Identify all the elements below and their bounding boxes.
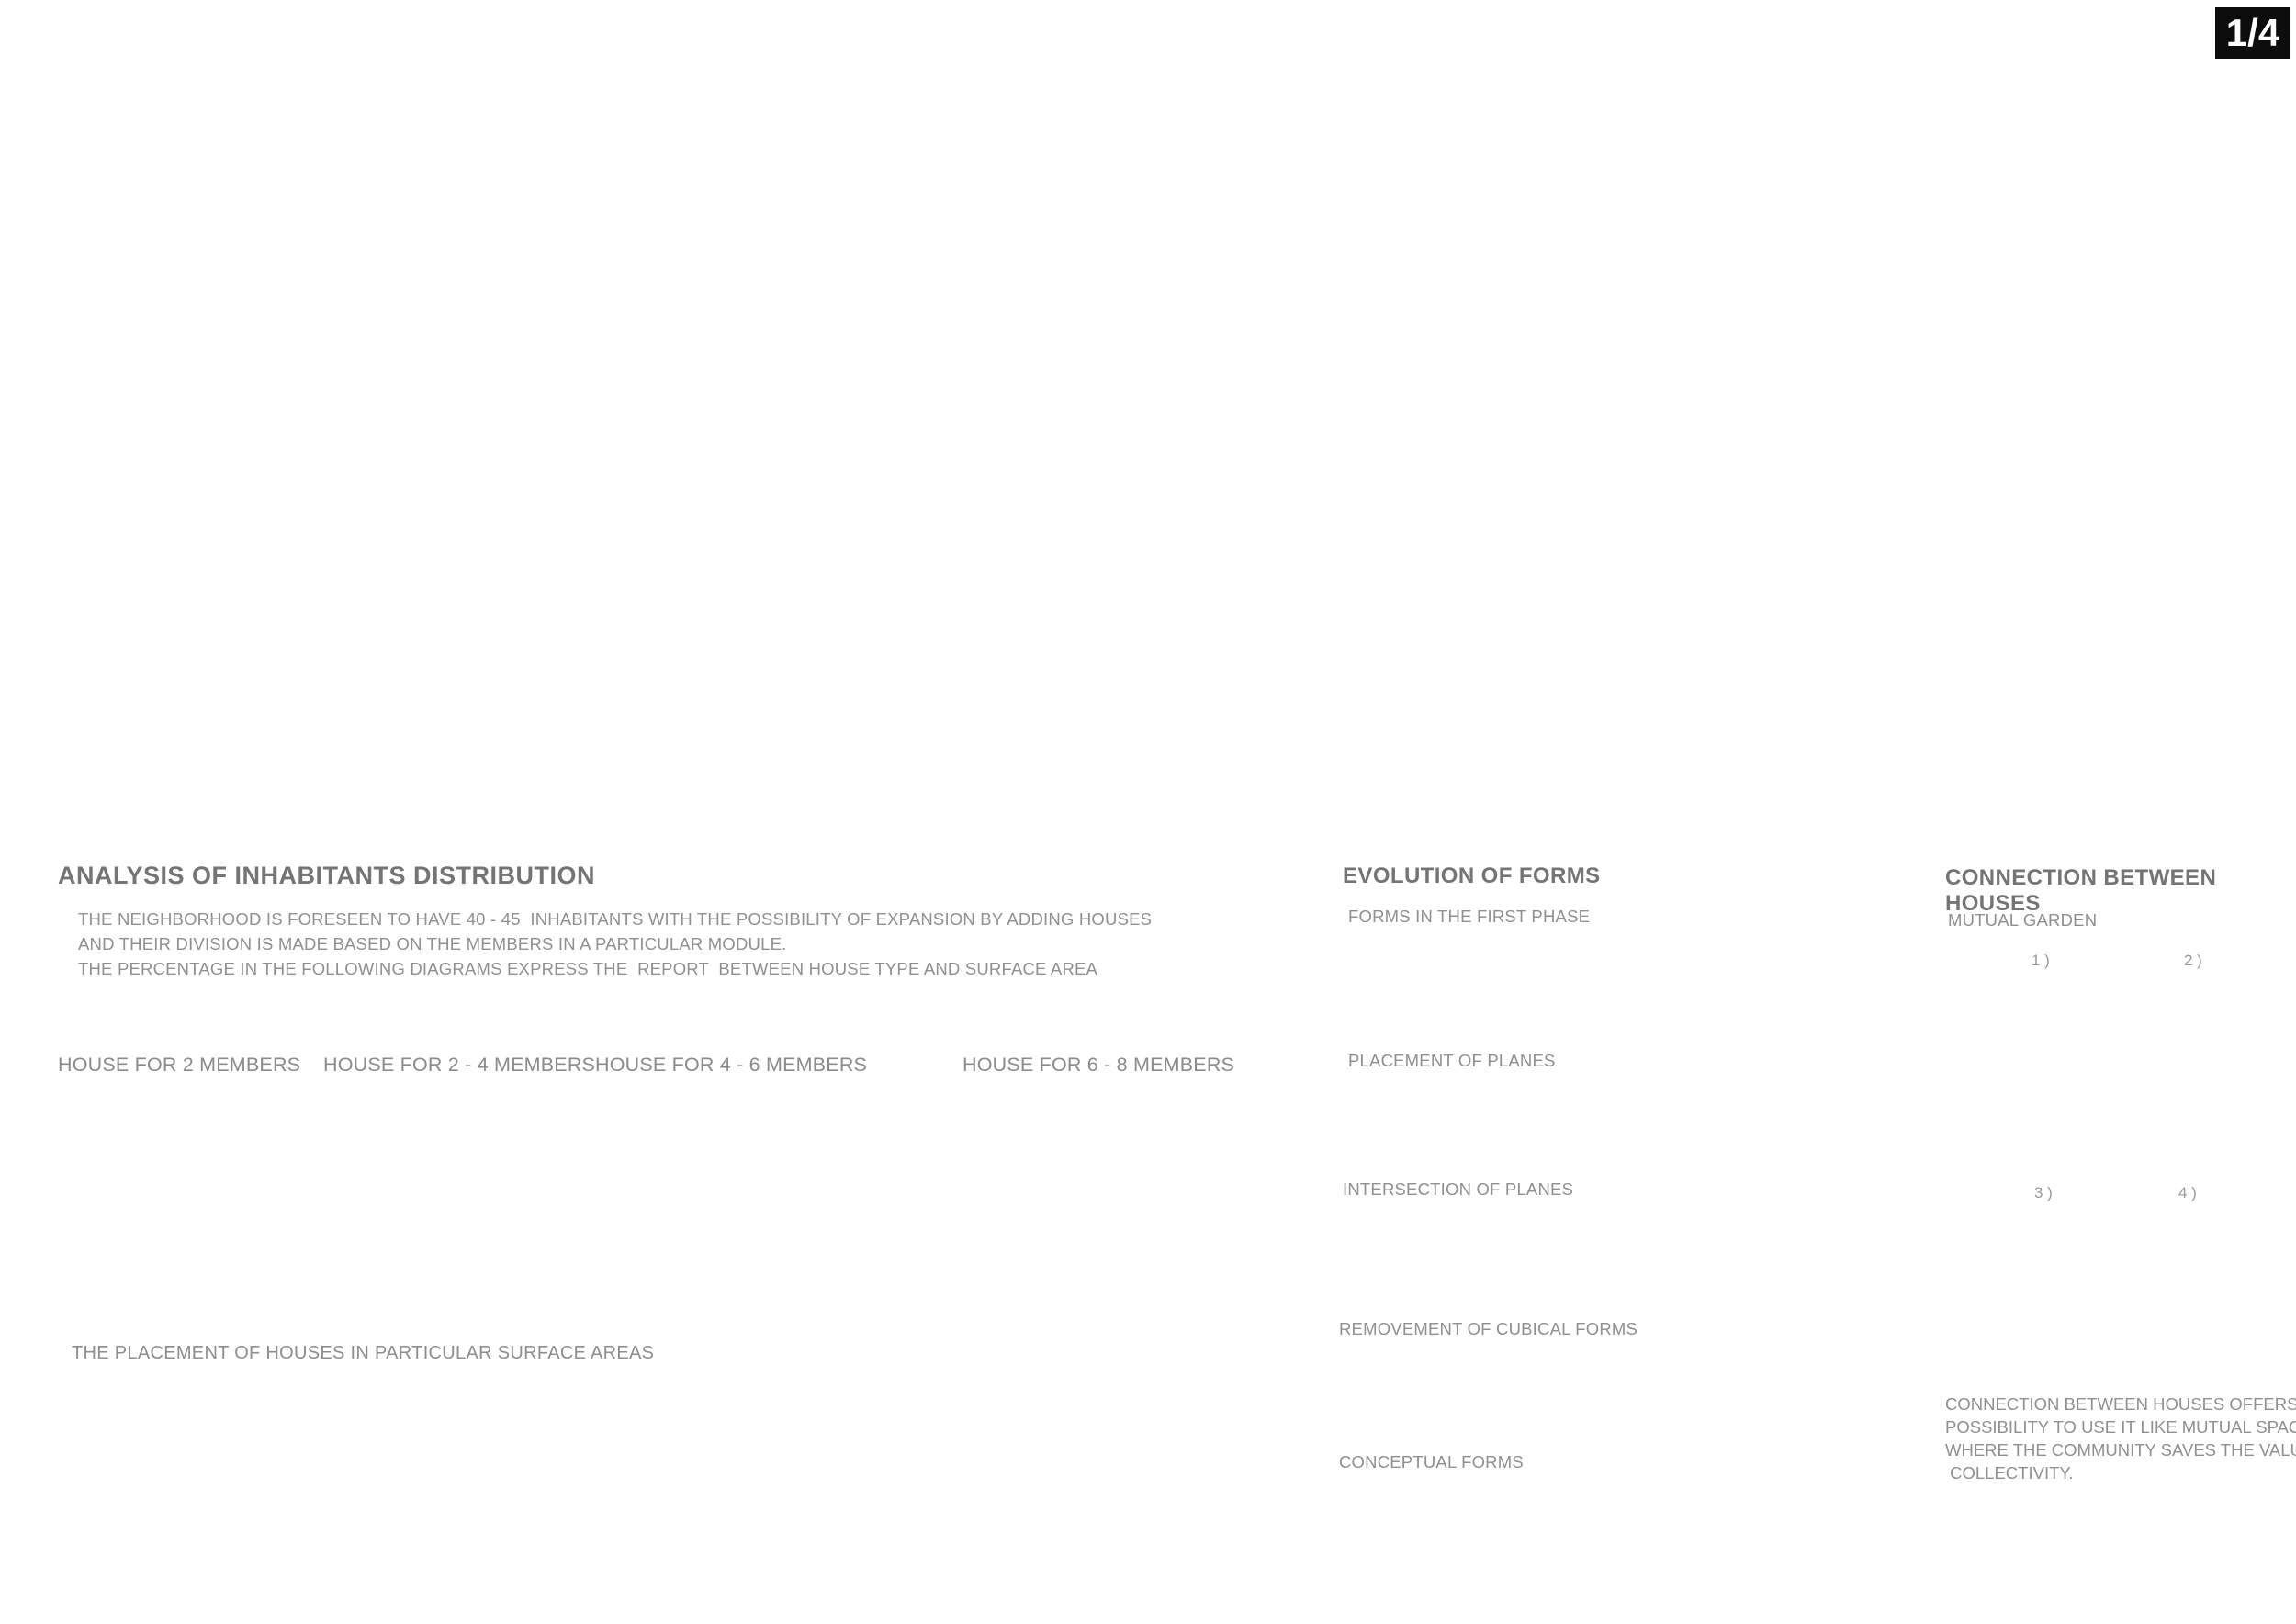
- mutual-garden-diagrams-1-2: [1956, 944, 2273, 1176]
- pie-chart-2-4-members: [323, 1075, 626, 1350]
- pie-title-2-members: HOUSE FOR 2 MEMBERS: [58, 1054, 300, 1077]
- pie-title-2-4-members: HOUSE FOR 2 - 4 MEMBERS: [323, 1054, 595, 1077]
- evolution-title: EVOLUTION OF FORMS: [1343, 863, 1601, 889]
- placement-map-6-8-members: [994, 1361, 1306, 1624]
- analysis-title: ANALYSIS OF INHABITANTS DISTRIBUTION: [58, 862, 595, 890]
- placement-map-2-4-members: [404, 1361, 716, 1624]
- pie-chart-4-6-members: [595, 1075, 907, 1350]
- placement-map-4-6-members: [672, 1361, 985, 1624]
- connection-body-line: POSSIBILITY TO USE IT LIKE MUTUAL SPACE: [1945, 1415, 2296, 1438]
- evolution-diagrams: [1322, 889, 1947, 1624]
- analysis-intro-line: THE NEIGHBORHOOD IS FORESEEN TO HAVE 40 …: [78, 907, 1152, 931]
- presentation-board: 1/4 ANALYSIS OF INHABITANTS DISTRIBUTION…: [0, 0, 2296, 1624]
- pie-chart-6-8-members: [905, 1075, 1290, 1350]
- connection-plan-diagram: [1934, 1462, 2296, 1624]
- page-number-badge: 1/4: [2215, 7, 2290, 59]
- pie-title-4-6-members: HOUSE FOR 4 - 6 MEMBERS: [595, 1054, 867, 1077]
- site-render-illustration: [0, 0, 2296, 863]
- pie-title-6-8-members: HOUSE FOR 6 - 8 MEMBERS: [962, 1054, 1234, 1077]
- placement-map-2-members: [87, 1361, 400, 1624]
- mutual-garden-label: MUTUAL GARDEN: [1948, 908, 2097, 932]
- connection-body-line: WHERE THE COMMUNITY SAVES THE VALUE OF: [1945, 1438, 2296, 1461]
- connection-body-line: CONNECTION BETWEEN HOUSES OFFERS THE: [1945, 1393, 2296, 1415]
- analysis-intro-line: THE PERCENTAGE IN THE FOLLOWING DIAGRAMS…: [78, 956, 1097, 981]
- analysis-intro-line: AND THEIR DIVISION IS MADE BASED ON THE …: [78, 931, 786, 956]
